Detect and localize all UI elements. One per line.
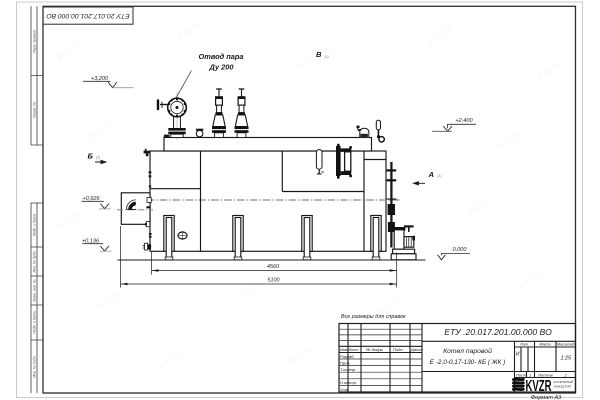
svg-text:А: А: [428, 170, 434, 179]
svg-text:(1): (1): [438, 174, 442, 178]
svg-text:Перв. примен.: Перв. примен.: [32, 29, 36, 53]
svg-text:Лист: Лист: [515, 372, 527, 377]
svg-text:Отвод пара: Отвод пара: [199, 52, 244, 61]
svg-text:Пров.: Пров.: [340, 360, 351, 365]
svg-text:ЗАВОД РЭП: ЗАВОД РЭП: [554, 385, 573, 389]
svg-text:Ду 200: Ду 200: [208, 62, 234, 71]
svg-text:Подп.: Подп.: [393, 347, 404, 352]
svg-text:Листов: Листов: [537, 372, 553, 377]
svg-text:Масштаб: Масштаб: [557, 342, 576, 346]
svg-text:Б: Б: [88, 152, 94, 161]
svg-text:В: В: [316, 50, 322, 59]
svg-text:Инв. № дубл.: Инв. № дубл.: [32, 250, 36, 272]
svg-text:Взам. инв. №: Взам. инв. №: [32, 279, 36, 301]
svg-text:Утв.: Утв.: [340, 387, 349, 392]
svg-text:Масса: Масса: [539, 342, 550, 346]
svg-text:И: И: [516, 352, 520, 358]
svg-text:Справ. №: Справ. №: [32, 102, 36, 118]
svg-text:KVZR: KVZR: [526, 378, 552, 395]
svg-text:Подп. и дата: Подп. и дата: [32, 311, 36, 334]
svg-text:1:25: 1:25: [561, 356, 572, 362]
svg-text:Котел паровой: Котел паровой: [443, 347, 492, 355]
svg-text:Инв. № подл.: Инв. № подл.: [32, 355, 36, 377]
svg-text:Формат А3: Формат А3: [531, 395, 562, 400]
svg-text:Дата: Дата: [410, 347, 422, 352]
svg-text:КОТЕЛЬНЫЙ: КОТЕЛЬНЫЙ: [554, 380, 574, 384]
svg-text:Все размеры для справок: Все размеры для справок: [341, 314, 406, 320]
svg-text:0,000: 0,000: [453, 247, 468, 253]
svg-text:Подп. и дата: Подп. и дата: [32, 214, 36, 237]
svg-text:Изм Лист: Изм Лист: [340, 347, 359, 352]
svg-text:ЕТУ 20.017.201.00.000 ВО: ЕТУ 20.017.201.00.000 ВО: [46, 12, 130, 19]
svg-text:Лит.: Лит.: [519, 342, 529, 346]
svg-text:ЕТУ .20.017.201.00.000 ВО: ЕТУ .20.017.201.00.000 ВО: [444, 327, 552, 337]
svg-text:Т.контр.: Т.контр.: [340, 367, 356, 372]
svg-text:4560: 4560: [267, 264, 279, 270]
svg-text:Н.контр.: Н.контр.: [340, 380, 357, 385]
svg-text:Разраб.: Разраб.: [340, 354, 354, 359]
svg-text:(1): (1): [96, 156, 100, 160]
svg-text:(1): (1): [325, 55, 329, 59]
svg-text:5100: 5100: [268, 278, 280, 284]
svg-text:+2,400: +2,400: [455, 118, 473, 124]
svg-text:1: 1: [529, 372, 531, 377]
svg-text:№ докум.: № докум.: [366, 347, 384, 352]
svg-text:Е -2,0-0,17-130- КБ ( ЖК ): Е -2,0-0,17-130- КБ ( ЖК ): [430, 359, 505, 366]
